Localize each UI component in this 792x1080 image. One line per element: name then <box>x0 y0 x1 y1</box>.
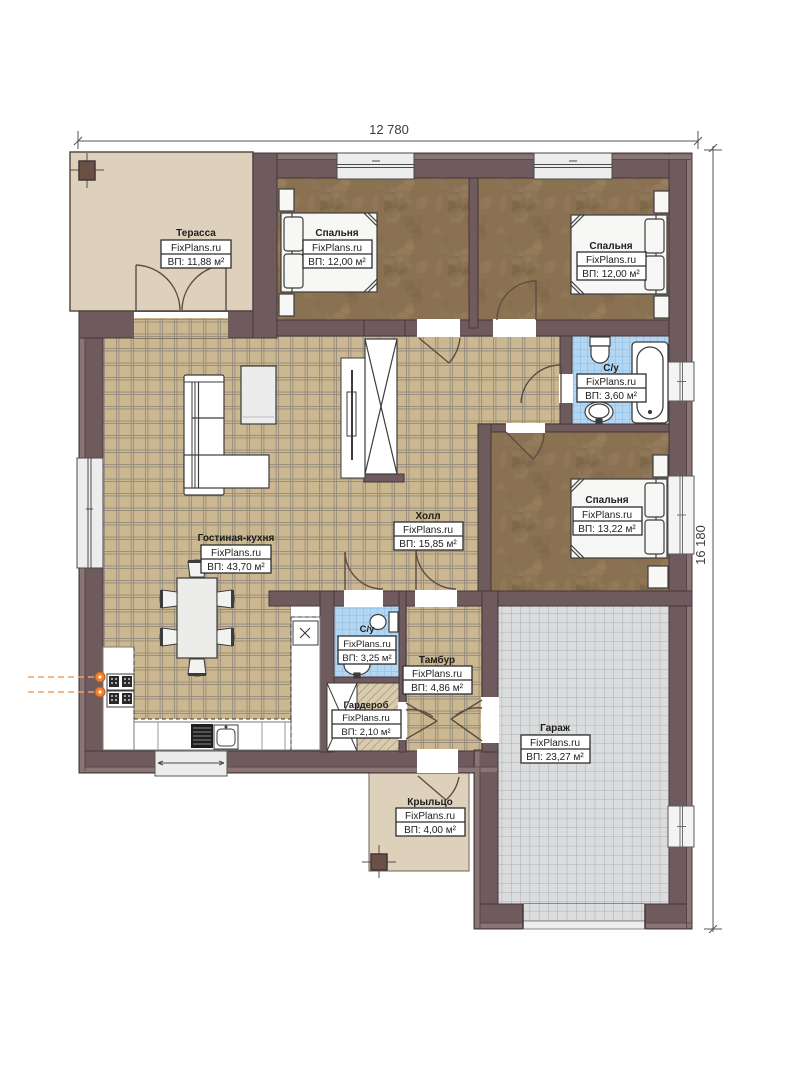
svg-text:Холл: Холл <box>415 511 440 522</box>
svg-text:12 780: 12 780 <box>369 122 409 137</box>
svg-text:FixPlans.ru: FixPlans.ru <box>582 510 632 521</box>
svg-text:FixPlans.ru: FixPlans.ru <box>412 669 462 680</box>
svg-text:ВП: 2,10 м²: ВП: 2,10 м² <box>341 727 390 738</box>
svg-text:ВП: 4,86 м²: ВП: 4,86 м² <box>411 683 464 694</box>
svg-text:Спальня: Спальня <box>589 241 632 252</box>
svg-text:Спальня: Спальня <box>315 228 358 239</box>
svg-text:ВП: 12,00 м²: ВП: 12,00 м² <box>308 257 366 268</box>
svg-text:Спальня: Спальня <box>585 495 628 506</box>
svg-text:ВП: 13,22 м²: ВП: 13,22 м² <box>578 524 636 535</box>
svg-text:FixPlans.ru: FixPlans.ru <box>586 255 636 266</box>
svg-text:С/у: С/у <box>603 363 619 374</box>
svg-text:ВП: 3,60 м²: ВП: 3,60 м² <box>585 391 638 402</box>
svg-text:ВП: 43,70 м²: ВП: 43,70 м² <box>207 562 265 573</box>
svg-text:ВП: 15,85 м²: ВП: 15,85 м² <box>399 539 457 550</box>
svg-text:С/у: С/у <box>360 624 376 635</box>
svg-text:FixPlans.ru: FixPlans.ru <box>586 377 636 388</box>
svg-text:FixPlans.ru: FixPlans.ru <box>312 243 362 254</box>
svg-text:FixPlans.ru: FixPlans.ru <box>403 525 453 536</box>
svg-text:FixPlans.ru: FixPlans.ru <box>343 639 391 650</box>
svg-text:FixPlans.ru: FixPlans.ru <box>530 738 580 749</box>
svg-text:FixPlans.ru: FixPlans.ru <box>342 713 390 724</box>
svg-text:Терасса: Терасса <box>176 228 216 239</box>
svg-text:Крыльцо: Крыльцо <box>407 797 453 808</box>
svg-text:FixPlans.ru: FixPlans.ru <box>405 811 455 822</box>
svg-text:Гараж: Гараж <box>540 723 571 734</box>
svg-text:ВП: 11,88 м²: ВП: 11,88 м² <box>168 257 225 268</box>
svg-text:FixPlans.ru: FixPlans.ru <box>171 243 221 254</box>
svg-text:FixPlans.ru: FixPlans.ru <box>211 548 261 559</box>
svg-text:ВП: 4,00 м²: ВП: 4,00 м² <box>404 825 457 836</box>
svg-text:Гостиная-кухня: Гостиная-кухня <box>198 533 275 544</box>
svg-text:Тамбур: Тамбур <box>419 654 455 666</box>
svg-text:ВП: 23,27 м²: ВП: 23,27 м² <box>526 752 584 763</box>
svg-text:16 180: 16 180 <box>693 525 708 565</box>
svg-text:ВП: 12,00 м²: ВП: 12,00 м² <box>582 269 640 280</box>
svg-text:ВП: 3,25 м²: ВП: 3,25 м² <box>342 653 391 664</box>
svg-text:Гардероб: Гардероб <box>344 700 389 711</box>
